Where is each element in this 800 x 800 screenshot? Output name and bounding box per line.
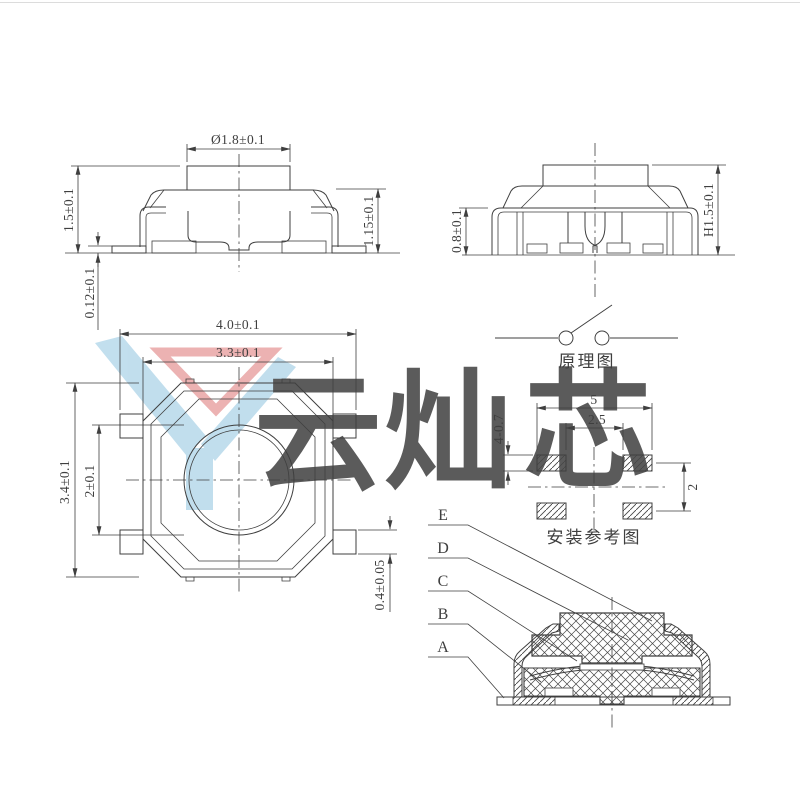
dim-pad-height: 4-0.7 [491, 414, 506, 444]
dim-frame-height: 0.8±0.1 [449, 209, 464, 253]
schematic-contact-right [595, 331, 609, 345]
front-cap [143, 190, 334, 211]
part-label-B: B [438, 606, 449, 623]
part-label-E: E [438, 507, 448, 524]
pad-bottom-left [537, 503, 566, 519]
section-terminal-hatch-left [513, 697, 555, 705]
top-pin-bl [120, 530, 143, 554]
dim-overall-height: 3.4±0.1 [57, 460, 72, 504]
dim-pin-width: 0.4±0.05 [372, 559, 387, 610]
dim-pad-inner-span: 2.5 [588, 412, 606, 427]
schematic-actuator [571, 305, 612, 333]
mounting-caption: 安装参考图 [547, 528, 642, 547]
dim-row-pitch: 2 [685, 483, 700, 490]
dim-stem-diameter: Ø1.8±0.1 [211, 132, 265, 147]
part-label-A: A [437, 639, 449, 656]
dim-overall-width: 4.0±0.1 [216, 317, 260, 332]
dim-total-height: 1.5±0.1 [61, 188, 76, 232]
pad-top-right [623, 455, 652, 471]
front-stem [187, 166, 290, 190]
side-cap [503, 186, 688, 208]
watermark-char-1: 云 [254, 359, 382, 509]
dim-button-diameter: 2±0.1 [82, 464, 97, 497]
part-label-C: C [438, 573, 449, 590]
pad-top-left [537, 455, 566, 471]
dim-body-width: 3.3±0.1 [216, 345, 260, 360]
dim-body-height: 1.15±0.1 [361, 195, 376, 246]
dim-side-total-height: H1.5±0.1 [701, 183, 716, 237]
schematic-caption: 原理图 [559, 352, 616, 371]
engineering-drawing-page: 云 灿 芯 Ø1.8±0.1 1.5±0.1 [0, 0, 800, 800]
watermark-char-3: 芯 [524, 357, 652, 507]
side-view: 0.8±0.1 H1.5±0.1 [449, 143, 735, 298]
part-label-D: D [437, 540, 449, 557]
side-stem [543, 165, 648, 186]
top-pin-tl [120, 414, 143, 438]
pad-bottom-right [623, 503, 652, 519]
dim-standoff: 0.12±0.1 [82, 267, 97, 318]
top-pin-br [333, 530, 356, 554]
section-terminal-hatch-right [673, 697, 713, 705]
dim-pad-outer-span: 5 [590, 392, 597, 407]
front-terminal-left [112, 246, 146, 253]
drawing-canvas: 云 灿 芯 Ø1.8±0.1 1.5±0.1 [0, 0, 800, 800]
schematic-contact-left [559, 331, 573, 345]
front-view: Ø1.8±0.1 1.5±0.1 0.12±0.1 1.15±0.1 [61, 132, 400, 330]
